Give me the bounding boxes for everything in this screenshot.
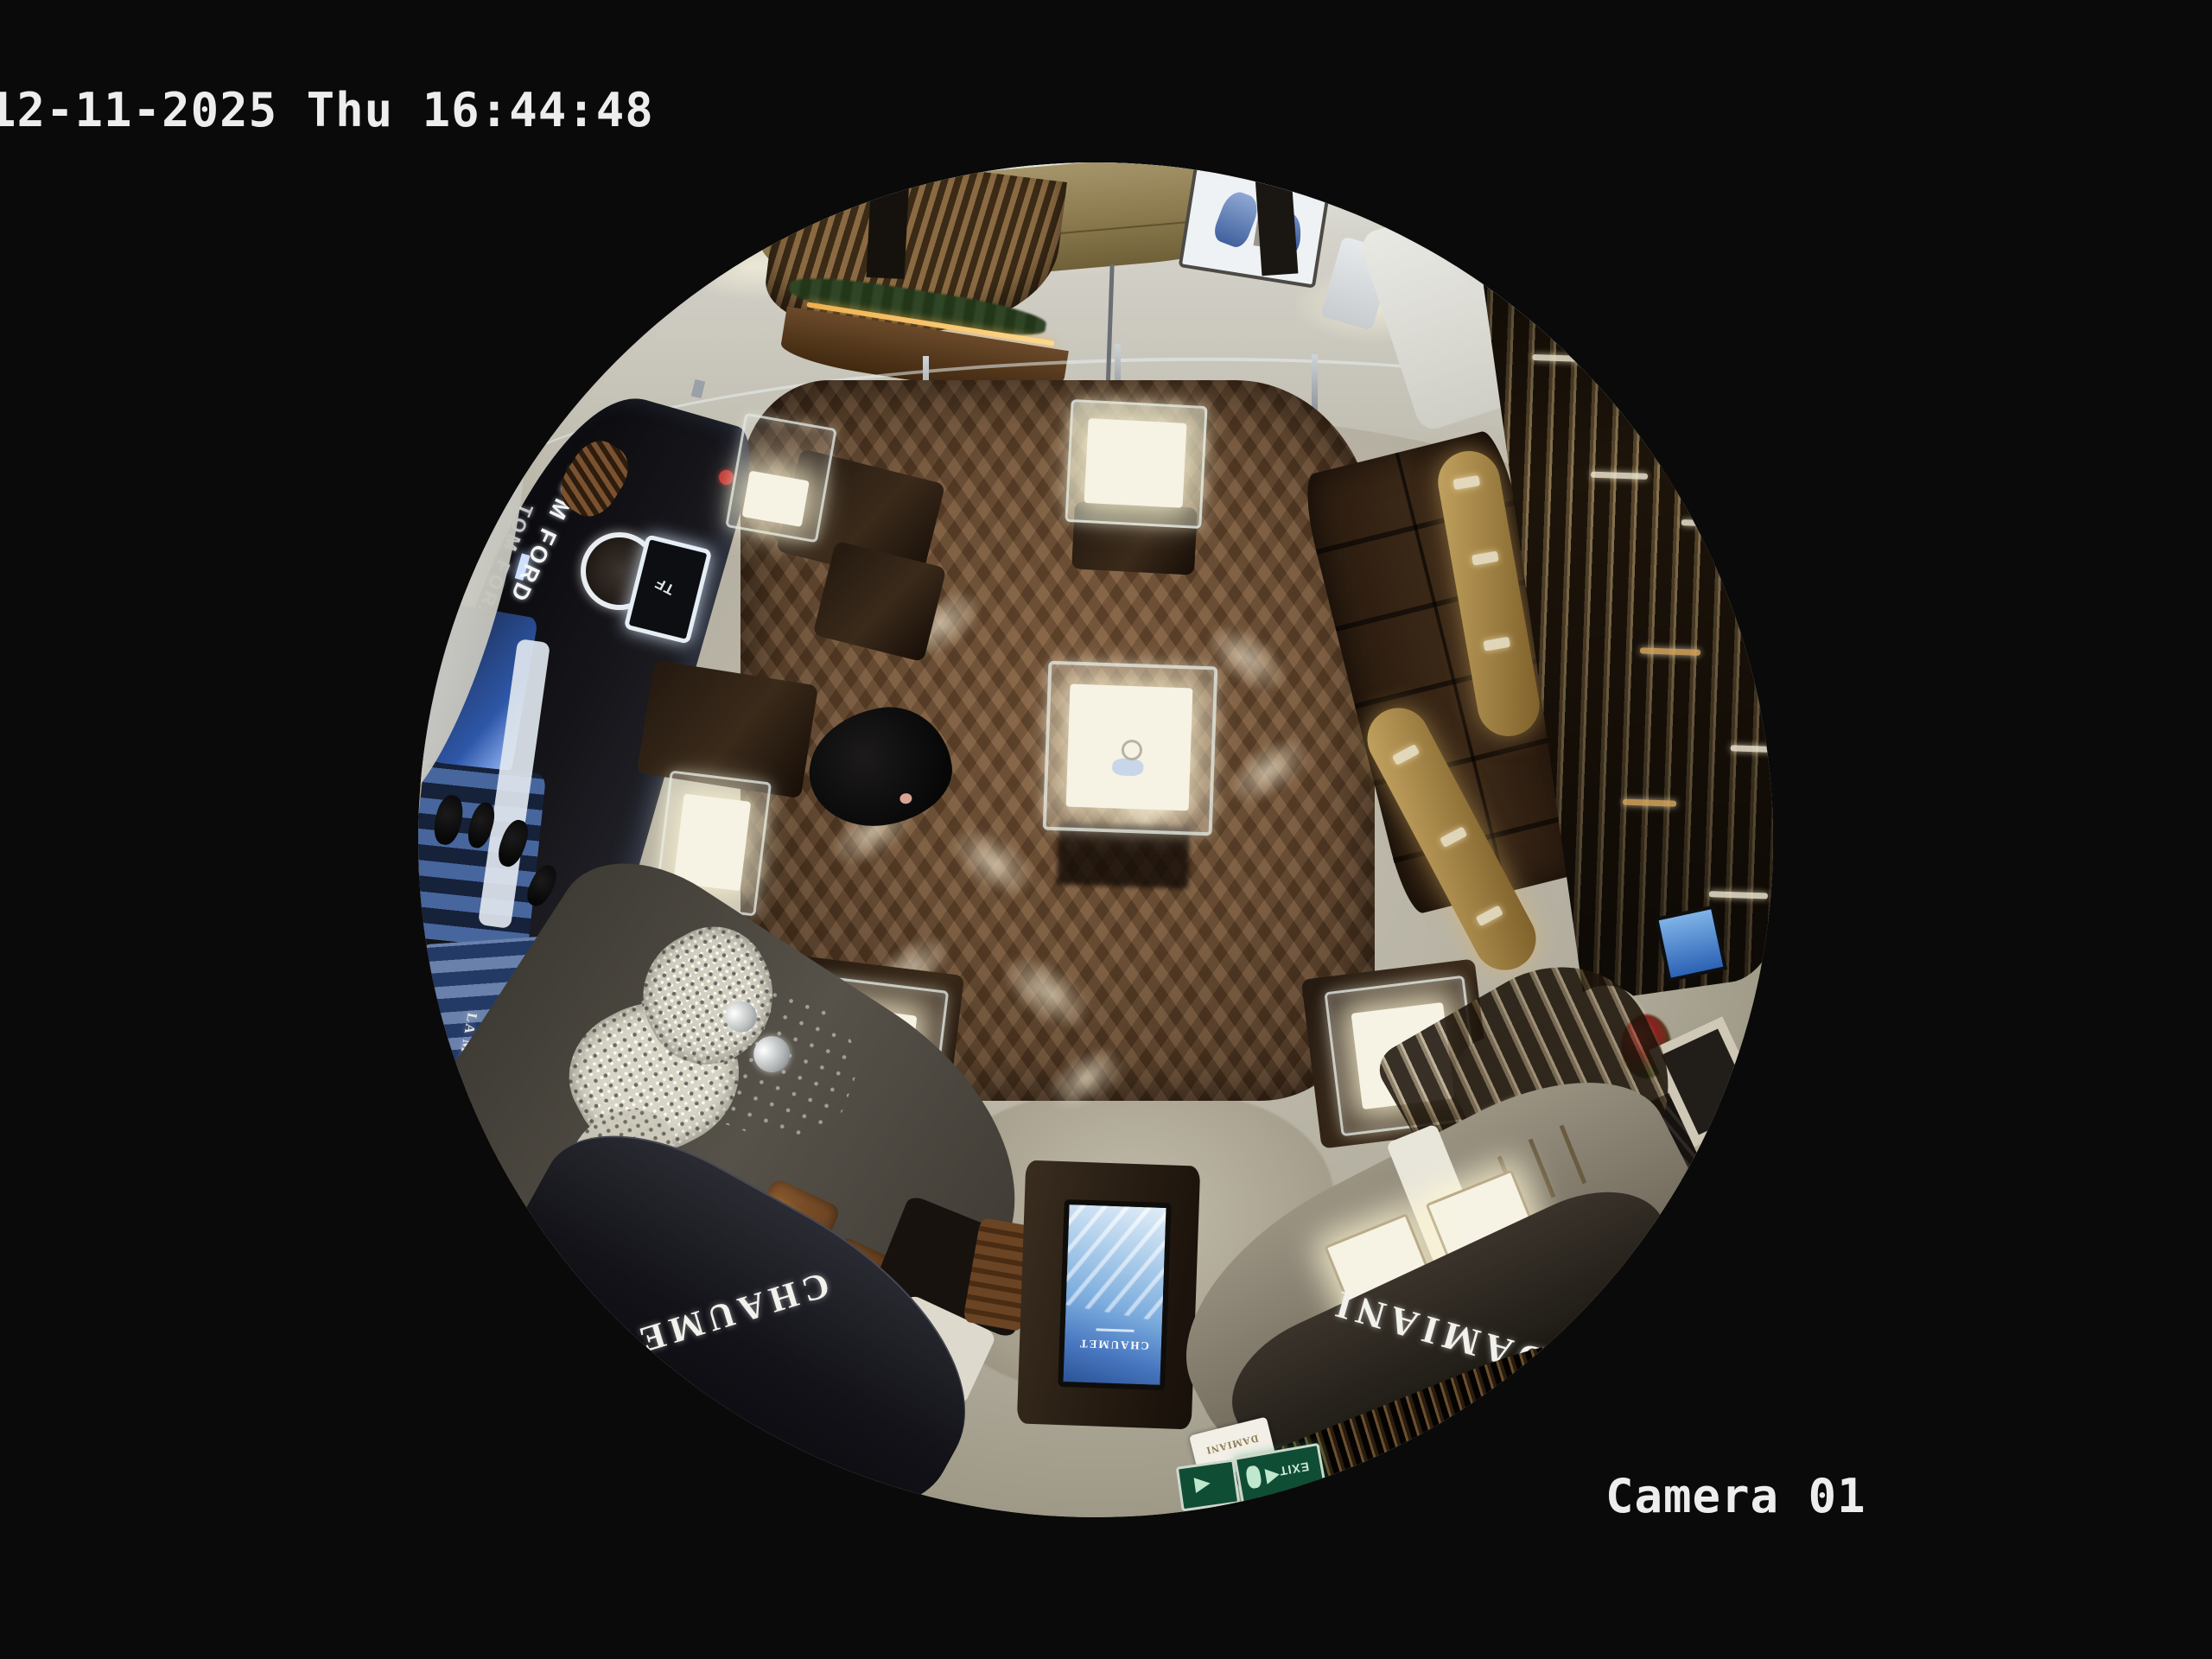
exit-sign-arrow-panel [1176,1459,1241,1512]
showcase-glint [1476,905,1503,926]
showcase-glint [1483,637,1510,652]
display-case-light [1084,418,1187,508]
screen-brand-text: CHAUMET [1075,1336,1154,1352]
cctv-frame: 12-11-2025 Thu 16:44:48 Camera 01 CONCH [0,0,2212,1659]
exit-text: EXIT [1278,1459,1310,1478]
kiosk-screen: CHAUMET [1058,1199,1171,1390]
osd-timestamp: 12-11-2025 Thu 16:44:48 [0,83,654,137]
glass-post [1312,354,1318,415]
running-man-icon [1245,1465,1262,1489]
display-case [1065,399,1207,529]
jewelry-item [1122,740,1143,761]
showcase-glint [1452,475,1480,490]
display-case [725,413,837,543]
screen-caption-bar [1096,1328,1135,1332]
exit-arrow-icon [1194,1476,1211,1493]
showcase-glint [1392,744,1420,766]
center-display-case [1043,661,1218,836]
fire-alarm [719,470,734,485]
tf-monogram: TF [652,574,677,598]
door-frame-dark [1255,163,1299,276]
jewelry-tray [1112,758,1144,776]
display-case-light [1066,684,1193,811]
customer-hand [899,792,913,804]
display-case-light [673,794,751,892]
display-case-light [742,471,810,527]
screen-jewelry-streaks [1058,1199,1171,1323]
fisheye-camera-view: CONCH [418,162,1773,1517]
showcase-glint [1471,551,1499,566]
showcase-glint [1440,826,1467,848]
door-frame-dark [866,162,910,279]
